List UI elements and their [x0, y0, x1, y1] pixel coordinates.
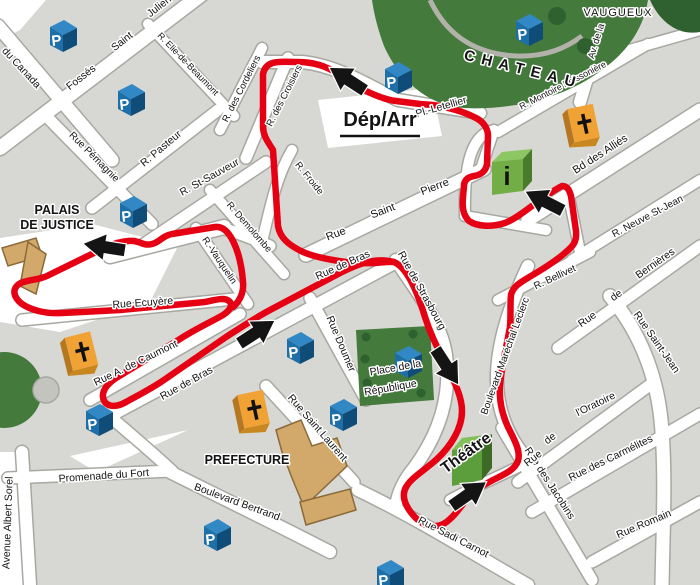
parking-letter: P — [119, 96, 131, 114]
landmark-label: VAUGUEUX — [584, 7, 653, 19]
tree — [409, 330, 418, 339]
fountain-circle — [33, 377, 59, 403]
tree — [362, 333, 371, 342]
street-avenue-albert-sorel — [22, 452, 30, 585]
parking-letter: P — [288, 344, 300, 362]
parking-letter: P — [331, 411, 343, 429]
tourist-route-map: iPPPPPPPPPPPFossésSaintJuliendu CanadaR.… — [0, 0, 700, 585]
landmark-label: PALAIS — [35, 203, 80, 217]
tree — [548, 7, 566, 25]
landmark-label: DE JUSTICE — [20, 218, 94, 232]
parking-letter: P — [51, 32, 63, 50]
tree — [417, 389, 426, 398]
landmark-label: Dép/Arr — [343, 109, 417, 131]
parking-letter: P — [205, 531, 217, 549]
city-map-canvas: iPPPPPPPPPPPFossésSaintJuliendu CanadaR.… — [0, 0, 700, 585]
info-letter: i — [503, 161, 510, 191]
parking-letter: P — [517, 26, 529, 44]
parking-letter: P — [378, 572, 390, 585]
tree — [361, 355, 370, 364]
parking-letter: P — [121, 208, 133, 226]
landmark-label: PREFECTURE — [205, 453, 290, 467]
parking-letter: P — [87, 416, 99, 434]
parking-letter: P — [386, 74, 398, 92]
